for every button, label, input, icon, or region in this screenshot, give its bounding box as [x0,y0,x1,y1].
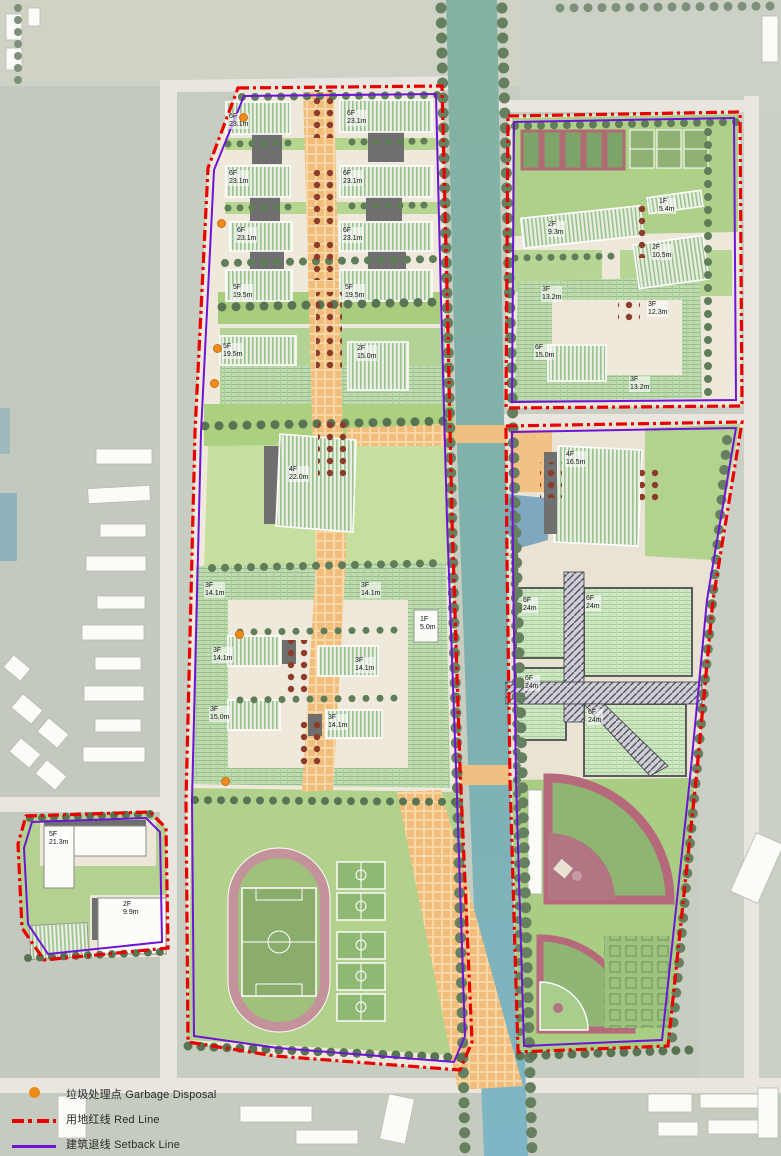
legend-item-red-line: 用地红线 Red Line [12,1111,217,1127]
river-bridge [447,425,513,443]
site-plan-map [0,0,781,1156]
athletics-track [228,848,330,1032]
legend-label: 建筑退线 Setback Line [66,1136,180,1152]
setback-line-icon [12,1145,56,1148]
legend-item-garbage: 垃圾处理点 Garbage Disposal [12,1086,217,1102]
mini-soccer-fields [337,862,385,1021]
master-plan-canvas: 6F23.1m6F23.1m6F23.1m6F23.1m6F23.1m6F23.… [0,0,781,1156]
tennis-courts [522,131,624,169]
garden-plots [604,936,670,1028]
southwest-parcel [18,812,168,960]
legend-item-setback-line: 建筑退线 Setback Line [12,1136,217,1152]
garbage-disposal-icon [29,1087,40,1098]
legend-label: 垃圾处理点 Garbage Disposal [66,1086,217,1102]
red-line-icon [12,1119,56,1123]
legend-label: 用地红线 Red Line [66,1111,160,1127]
map-legend: 垃圾处理点 Garbage Disposal 用地红线 Red Line 建筑退… [12,1086,217,1152]
sport-courts [630,130,708,168]
